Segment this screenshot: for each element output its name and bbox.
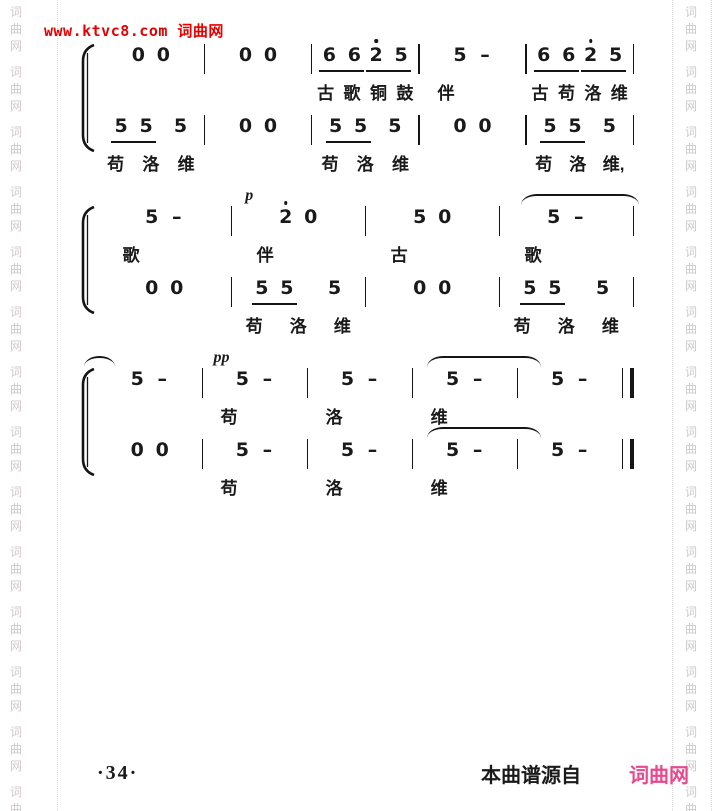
measure-lyrics: 苟洛维 xyxy=(312,150,418,176)
measure: pp5–苟 xyxy=(203,368,307,429)
measure: 00 xyxy=(98,44,204,105)
measure-notes: 6625 xyxy=(527,44,633,74)
measure-lyrics xyxy=(366,312,499,338)
lyric-syllable: 维 xyxy=(610,79,628,105)
measure-notes: 5– xyxy=(98,368,202,398)
border-watermark-char: 曲 xyxy=(685,23,697,35)
note-group: 00 xyxy=(127,439,172,461)
measure-notes: 555 xyxy=(98,115,204,145)
score: 00006625古歌铜鼓5–伴6625古苟洛维555苟洛维00555苟洛维005… xyxy=(76,44,634,530)
border-watermark-char: 曲 xyxy=(685,143,697,155)
lyric-syllable xyxy=(115,403,133,429)
border-watermark-char: 网 xyxy=(685,340,697,352)
measure-lyrics: 苟洛维 xyxy=(98,150,204,176)
dash-note: – xyxy=(365,368,379,390)
border-watermark-char: 曲 xyxy=(10,503,22,515)
measure-notes: 00 xyxy=(98,44,204,74)
measure: p20伴 xyxy=(232,206,365,267)
lyric-syllable xyxy=(490,150,508,176)
measure: 5–洛 xyxy=(308,439,412,500)
note-digit: 5 xyxy=(453,44,466,66)
note: 5 xyxy=(340,439,354,461)
rest-note: 0 xyxy=(239,115,253,137)
lyric-syllable: 古 xyxy=(390,241,408,267)
dash-note: – xyxy=(155,368,169,390)
measure: 00 xyxy=(366,277,499,338)
note-digit: 5 xyxy=(609,44,622,66)
note-digit: 5 xyxy=(329,115,342,137)
border-watermark-char: 词 xyxy=(10,786,22,798)
border-watermark-char: 网 xyxy=(685,220,697,232)
note-digit: – xyxy=(473,368,483,390)
system-lines: 5–歌p20伴50古5–歌00555苟洛维00555苟洛维 xyxy=(98,206,634,338)
border-watermark-group: 词曲网 xyxy=(10,306,22,352)
dash-note: – xyxy=(572,206,586,228)
lyric-syllable: 古 xyxy=(317,79,335,105)
border-watermark-char: 网 xyxy=(685,640,697,652)
lyric-syllable xyxy=(167,403,185,429)
rest-note: 0 xyxy=(156,44,170,66)
note-group: 5– xyxy=(443,368,488,390)
border-watermark-char: 网 xyxy=(10,280,22,292)
staff-line: 00006625古歌铜鼓5–伴6625古苟洛维 xyxy=(98,44,634,105)
border-watermark-char: 曲 xyxy=(685,83,697,95)
final-barline xyxy=(622,368,634,398)
lyric-syllable: 洛 xyxy=(142,150,160,176)
note-digit: 5 xyxy=(551,368,564,390)
system-lines: 00006625古歌铜鼓5–伴6625古苟洛维555苟洛维00555苟洛维005… xyxy=(98,44,634,176)
measure-lyrics: 古歌铜鼓 xyxy=(312,79,418,105)
beam-group: 66 xyxy=(534,44,579,72)
lyric-syllable: 歌 xyxy=(122,241,140,267)
note-group: 5– xyxy=(337,368,382,390)
rest-note: 0 xyxy=(453,115,467,137)
measure-notes: 5– xyxy=(308,368,412,398)
border-watermark-group: 词曲网 xyxy=(10,186,22,232)
border-watermark-char: 词 xyxy=(10,486,22,498)
note-digit: 5 xyxy=(341,439,354,461)
lyric-syllable: 洛 xyxy=(325,403,343,429)
border-watermark-char: 词 xyxy=(10,306,22,318)
border-watermark-group: 词曲网 xyxy=(10,126,22,172)
lyric-syllable: 鼓 xyxy=(396,79,414,105)
note-group: 5– xyxy=(232,368,277,390)
lyric-syllable: 苟 xyxy=(321,150,339,176)
lyric-syllable: 苟 xyxy=(535,150,553,176)
note-digit: 0 xyxy=(453,115,466,137)
rest-note: 0 xyxy=(413,277,427,299)
note-digit: 0 xyxy=(156,439,169,461)
note-digit: 5 xyxy=(145,206,158,228)
border-watermark-char: 网 xyxy=(10,580,22,592)
measure: 5– xyxy=(98,368,202,429)
measure-notes: 5– xyxy=(413,439,517,469)
border-watermark-char: 词 xyxy=(10,126,22,138)
lyric-syllable xyxy=(223,79,241,105)
rest-note: 0 xyxy=(264,115,278,137)
border-watermark-char: 曲 xyxy=(10,143,22,155)
border-watermark-char: 网 xyxy=(685,100,697,112)
border-watermark-char: 词 xyxy=(10,246,22,258)
dash-note: – xyxy=(365,439,379,461)
border-watermark-group: 词曲网 xyxy=(10,366,22,412)
dash-note: – xyxy=(471,368,485,390)
measure-notes: 5– xyxy=(98,206,231,236)
border-watermark-group: 词曲网 xyxy=(685,186,697,232)
system-brace-icon xyxy=(76,368,98,476)
beam-group: 55 xyxy=(111,115,156,143)
octave-dot xyxy=(374,39,378,43)
measure-lyrics xyxy=(205,150,311,176)
border-watermark-group: 词曲网 xyxy=(10,486,22,532)
lyric-syllable xyxy=(188,312,206,338)
beam-group: 66 xyxy=(319,44,364,72)
note-group: 5– xyxy=(127,368,172,390)
border-watermark-char: 曲 xyxy=(10,443,22,455)
measure-notes: 5– xyxy=(413,368,517,398)
note: 5 xyxy=(446,439,460,461)
note-digit: 0 xyxy=(170,277,183,299)
measure-lyrics xyxy=(98,312,231,338)
lyric-syllable: 维 xyxy=(391,150,409,176)
lyric-syllable: 洛 xyxy=(356,150,374,176)
beam-group: 55 xyxy=(326,115,371,143)
lyric-syllable xyxy=(482,403,500,429)
note: 5 xyxy=(328,277,342,299)
note: 5 xyxy=(388,115,402,137)
note: 5 xyxy=(255,277,269,301)
border-watermark-char: 词 xyxy=(685,666,697,678)
note: 6 xyxy=(537,44,551,68)
lyric-syllable xyxy=(535,403,553,429)
octave-dot xyxy=(589,39,593,43)
border-watermark-char: 曲 xyxy=(10,83,22,95)
note-digit: – xyxy=(263,368,273,390)
border-watermark-char: 曲 xyxy=(685,263,697,275)
border-watermark-char: 曲 xyxy=(685,503,697,515)
lyric-syllable xyxy=(223,150,241,176)
border-watermark-char: 词 xyxy=(10,186,22,198)
note-digit: – xyxy=(574,206,584,228)
lyric-syllable xyxy=(377,474,395,500)
note-digit: – xyxy=(172,206,182,228)
measure-lyrics xyxy=(205,79,311,105)
border-watermark-char: 词 xyxy=(685,186,697,198)
lyric-syllable xyxy=(122,312,140,338)
lyric-syllable: 洛 xyxy=(325,474,343,500)
rest-note: 0 xyxy=(264,44,278,66)
note-group: 5– xyxy=(548,368,593,390)
measure-lyrics: 苟 xyxy=(203,474,307,500)
lyric-syllable: 维 xyxy=(601,312,619,338)
border-watermark-char: 网 xyxy=(10,40,22,52)
lyric-syllable xyxy=(167,474,185,500)
border-watermark-char: 词 xyxy=(10,6,22,18)
note-digit: 0 xyxy=(264,115,277,137)
measure-notes: 5– xyxy=(203,368,307,398)
lyric-syllable: 维 xyxy=(430,403,448,429)
note-digit: 0 xyxy=(413,277,426,299)
border-watermark-char: 词 xyxy=(685,486,697,498)
border-watermark-char: 曲 xyxy=(10,383,22,395)
lyric-syllable: 歌 xyxy=(524,241,542,267)
measure-lyrics: 苟洛维 xyxy=(232,312,365,338)
border-watermark-group: 词曲网 xyxy=(10,726,22,772)
lyric-syllable xyxy=(115,474,133,500)
border-watermark-char: 网 xyxy=(685,400,697,412)
border-watermark-char: 网 xyxy=(10,520,22,532)
border-watermark-group: 词曲网 xyxy=(10,6,22,52)
lyric-syllable: 铜 xyxy=(369,79,387,105)
rest-note: 0 xyxy=(155,439,169,461)
barline xyxy=(633,277,635,307)
site-watermark-link[interactable]: www.ktvc8.com 词曲网 xyxy=(44,20,224,41)
note-digit: 0 xyxy=(239,115,252,137)
note: 5 xyxy=(551,368,565,390)
lyric-syllable: 伴 xyxy=(437,79,455,105)
note-group: 20 xyxy=(276,206,321,228)
measure-lyrics: 苟洛维 xyxy=(500,312,633,338)
lyric-syllable: 洛 xyxy=(557,312,575,338)
note-digit: – xyxy=(578,368,588,390)
lyric-syllable xyxy=(168,79,186,105)
note-digit: 6 xyxy=(323,44,336,66)
measure-lyrics xyxy=(518,474,622,500)
border-watermark-char: 曲 xyxy=(685,383,697,395)
border-watermark-char: 词 xyxy=(685,426,697,438)
lyric-syllable: 苟 xyxy=(107,150,125,176)
dash-note: – xyxy=(478,44,492,66)
measure: 555苟洛维, xyxy=(527,115,633,176)
border-watermark-char: 曲 xyxy=(10,23,22,35)
note: 5 xyxy=(139,115,153,139)
note: 5 xyxy=(174,115,188,137)
right-border-watermark-column: 词曲网词曲网词曲网词曲网词曲网词曲网词曲网词曲网词曲网词曲网词曲网词曲网词曲网词… xyxy=(679,6,703,811)
rest-note: 0 xyxy=(239,44,253,66)
measure-notes: 00 xyxy=(366,277,499,307)
dash-note: – xyxy=(576,368,590,390)
staff-line: 555苟洛维00555苟洛维00555苟洛维, xyxy=(98,115,634,176)
note-group: 00 xyxy=(450,115,495,137)
beam-group: 55 xyxy=(540,115,585,143)
note-digit: 5 xyxy=(174,115,187,137)
lyric-syllable xyxy=(482,474,500,500)
note-group: 5– xyxy=(142,206,187,228)
note-digit: 0 xyxy=(478,115,491,137)
measure: 5–苟 xyxy=(203,439,307,500)
lyric-syllable: 洛 xyxy=(569,150,587,176)
note-group: 00 xyxy=(128,44,173,66)
tie-span-mark xyxy=(427,427,541,441)
border-watermark-char: 网 xyxy=(10,760,22,772)
note: 5 xyxy=(446,368,460,390)
note-digit: – xyxy=(473,439,483,461)
lyric-syllable: 洛 xyxy=(289,312,307,338)
note-group: 00 xyxy=(410,277,455,299)
note-group: 5– xyxy=(450,44,495,66)
system-brace xyxy=(76,44,98,176)
staff-line: 00555苟洛维00555苟洛维 xyxy=(98,277,634,338)
lyric-syllable xyxy=(587,403,605,429)
note-digit: 5 xyxy=(115,115,128,137)
barline xyxy=(633,206,635,236)
note: 5 xyxy=(543,115,557,139)
lyric-syllable: 苟 xyxy=(245,312,263,338)
border-watermark-char: 网 xyxy=(10,220,22,232)
note-digit: 2 xyxy=(279,206,292,228)
note-digit: 2 xyxy=(370,44,383,66)
border-watermark-char: 词 xyxy=(10,726,22,738)
note: 6 xyxy=(562,44,576,68)
measure: 555苟洛维 xyxy=(232,277,365,338)
rest-note: 0 xyxy=(304,206,318,228)
border-watermark-group: 词曲网 xyxy=(685,546,697,592)
measure-notes: 555 xyxy=(312,115,418,145)
system-brace-icon xyxy=(76,206,98,314)
border-watermark-char: 曲 xyxy=(685,563,697,575)
measure-lyrics xyxy=(420,150,526,176)
note-digit: 5 xyxy=(543,115,556,137)
measure-notes: 555 xyxy=(232,277,365,307)
staff-line: 005–苟5–洛5–维5– xyxy=(98,439,634,500)
right-edge-dotted-line xyxy=(711,0,712,811)
border-watermark-char: 词 xyxy=(685,306,697,318)
note-digit: 0 xyxy=(304,206,317,228)
dash-note: – xyxy=(471,439,485,461)
staff-line: 5–pp5–苟5–洛5–维5– xyxy=(98,368,634,429)
border-watermark-char: 词 xyxy=(685,246,697,258)
note-digit: 6 xyxy=(348,44,361,66)
note-digit: 5 xyxy=(140,115,153,137)
lyric-syllable xyxy=(322,241,340,267)
border-watermark-char: 词 xyxy=(10,546,22,558)
left-border-watermark-column: 词曲网词曲网词曲网词曲网词曲网词曲网词曲网词曲网词曲网词曲网词曲网词曲网词曲网词… xyxy=(4,6,28,811)
measure-notes: 5– xyxy=(500,206,633,236)
measure-lyrics: 维 xyxy=(413,474,517,500)
lyric-syllable xyxy=(115,79,133,105)
border-watermark-group: 词曲网 xyxy=(685,66,697,112)
note-digit: 6 xyxy=(537,44,550,66)
border-watermark-char: 网 xyxy=(10,400,22,412)
border-watermark-char: 网 xyxy=(10,460,22,472)
note-digit: – xyxy=(263,439,273,461)
measure: 5–歌 xyxy=(500,206,633,267)
measure: 5–歌 xyxy=(98,206,231,267)
page-number: ·34· xyxy=(97,762,138,785)
border-watermark-char: 网 xyxy=(10,100,22,112)
border-watermark-char: 网 xyxy=(10,340,22,352)
lyric-syllable xyxy=(456,241,474,267)
note-digit: 5 xyxy=(446,439,459,461)
note-group: 5 xyxy=(599,115,619,137)
note-group: 5 xyxy=(171,115,191,137)
lyric-syllable xyxy=(275,150,293,176)
left-border-dotted-line xyxy=(57,0,58,811)
border-watermark-char: 曲 xyxy=(10,203,22,215)
border-watermark-char: 曲 xyxy=(685,803,697,811)
lyric-syllable: 伴 xyxy=(256,241,274,267)
lyric-syllable xyxy=(590,241,608,267)
border-watermark-group: 词曲网 xyxy=(685,6,697,52)
note: 5 xyxy=(235,368,249,390)
border-watermark-char: 词 xyxy=(10,66,22,78)
measure-lyrics: 伴 xyxy=(232,241,365,267)
note: 5 xyxy=(145,206,159,228)
note-group: 5 xyxy=(325,277,345,299)
right-border-dotted-line xyxy=(672,0,673,811)
system-brace xyxy=(76,368,98,500)
beam-group: 55 xyxy=(252,277,297,305)
dash-note: – xyxy=(170,206,184,228)
measure: 555苟洛维 xyxy=(312,115,418,176)
barline xyxy=(633,44,635,74)
tie-span-mark xyxy=(427,356,541,370)
note: 5 xyxy=(340,368,354,390)
lyric-syllable: 苟 xyxy=(557,79,575,105)
border-watermark-char: 曲 xyxy=(10,563,22,575)
note: 5 xyxy=(609,44,623,68)
lyric-syllable: 歌 xyxy=(343,79,361,105)
lyric-syllable xyxy=(377,403,395,429)
border-watermark-char: 词 xyxy=(10,426,22,438)
measure-notes: 00 xyxy=(420,115,526,145)
border-watermark-group: 词曲网 xyxy=(10,606,22,652)
note: 5 xyxy=(394,44,408,68)
note-digit: 0 xyxy=(239,44,252,66)
footer-site-link[interactable]: 词曲网 xyxy=(629,759,689,788)
note: 5 xyxy=(114,115,128,139)
measure-notes: 5– xyxy=(518,439,622,469)
measure-notes: 5– xyxy=(203,439,307,469)
measure: 5–维 xyxy=(413,368,517,429)
measure-notes: 20 xyxy=(232,206,365,236)
system-brace xyxy=(76,206,98,338)
border-watermark-char: 曲 xyxy=(10,803,22,811)
lyric-syllable xyxy=(490,79,508,105)
note-digit: 5 xyxy=(341,368,354,390)
note: 6 xyxy=(322,44,336,68)
measure-lyrics: 苟洛维, xyxy=(527,150,633,176)
border-watermark-char: 网 xyxy=(685,40,697,52)
note-group: 5– xyxy=(443,439,488,461)
note-digit: 0 xyxy=(157,44,170,66)
measure-notes: 5– xyxy=(420,44,526,74)
lyric-syllable: 维 xyxy=(430,474,448,500)
border-watermark-char: 网 xyxy=(685,580,697,592)
dash-note: – xyxy=(260,368,274,390)
note: 5 xyxy=(548,277,562,301)
note-digit: 5 xyxy=(388,115,401,137)
note-digit: 0 xyxy=(438,277,451,299)
note-group: 5 xyxy=(385,115,405,137)
border-watermark-char: 词 xyxy=(685,6,697,18)
measure: 00 xyxy=(420,115,526,176)
measure-lyrics: 歌 xyxy=(98,241,231,267)
note: 5 xyxy=(130,368,144,390)
staff-line: 5–歌p20伴50古5–歌 xyxy=(98,206,634,267)
border-watermark-char: 词 xyxy=(685,726,697,738)
lyric-syllable: 苟 xyxy=(513,312,531,338)
rest-note: 0 xyxy=(438,206,452,228)
note-digit: 5 xyxy=(131,368,144,390)
note-digit: 0 xyxy=(438,206,451,228)
note: 2 xyxy=(279,206,293,228)
note-digit: 0 xyxy=(145,277,158,299)
measure: 6625古苟洛维 xyxy=(527,44,633,105)
border-watermark-char: 网 xyxy=(10,700,22,712)
measure-lyrics: 苟 xyxy=(203,403,307,429)
note-digit: 0 xyxy=(132,44,145,66)
